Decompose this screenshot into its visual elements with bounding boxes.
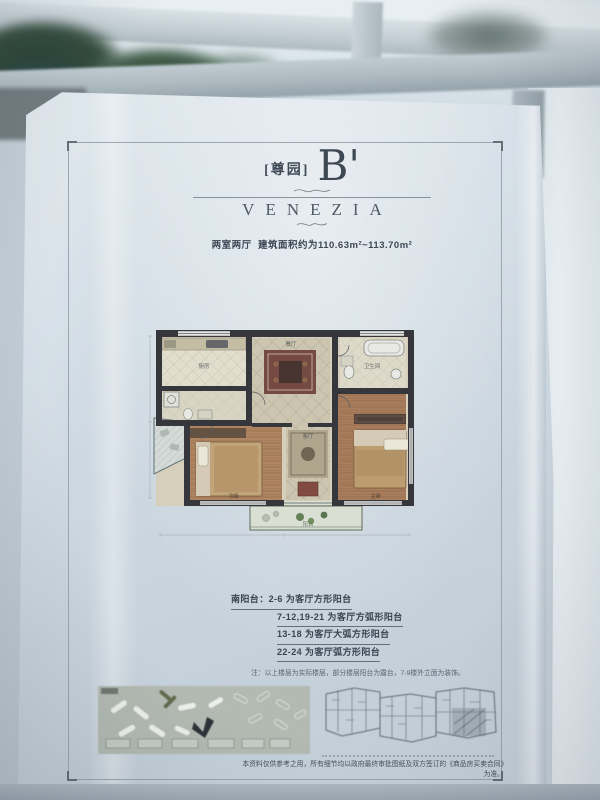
label-kitchen: 厨房 xyxy=(198,362,210,370)
legend-line: 7-12,19-21 为客厅方弧形阳台 xyxy=(277,610,403,628)
flourish-ornament xyxy=(295,221,329,228)
floor-key-plan xyxy=(318,680,502,752)
label-second-bedroom: 次卧 xyxy=(228,492,240,500)
rooms-count: 两室两厅 xyxy=(212,240,252,251)
photo-of-floorplan-poster: [尊园] B' VENEZIA 两室两厅 建筑面积约为110.63m²~113.… xyxy=(0,0,600,800)
project-tag: [尊园] xyxy=(264,159,309,186)
balcony-legend: 南阳台：2-6 为客厅方形阳台 7-12,19-21 为客厅方弧形阳台 13-1… xyxy=(231,592,481,682)
floor-plan-poster-sheet: [尊园] B' VENEZIA 两室两厅 建筑面积约为110.63m²~113.… xyxy=(18,88,560,800)
disclaimer-text: 本资料仅供参考之用，所有细节均以政府最终审批图纸及双方签订的《商品房买卖合同》为… xyxy=(242,758,504,778)
label-living-room: 客厅 xyxy=(302,432,314,440)
label-dining: 餐厅 xyxy=(285,340,297,348)
frame-corner-icon xyxy=(67,771,77,781)
title-block: [尊园] B' VENEZIA 两室两厅 建筑面积约为110.63m²~113.… xyxy=(68,146,528,251)
label-master-bedroom: 主卧 xyxy=(370,492,382,500)
unit-subtitle: 两室两厅 建筑面积约为110.63m²~113.70m² xyxy=(96,237,528,251)
legend-line: 南阳台：2-6 为客厅方形阳台 xyxy=(231,592,352,610)
brand-rule xyxy=(193,197,431,198)
tiny-caption-row xyxy=(322,752,494,757)
label-balcony: 阳台 xyxy=(302,520,314,528)
floor-plan-drawing: 厨房 餐厅 卫生间 主卧 次卧 客厅 阳台 xyxy=(148,326,422,538)
site-plan-label-chip xyxy=(101,688,118,694)
label-bathroom: 卫生间 xyxy=(364,362,381,370)
unit-type-label: B' xyxy=(317,146,359,186)
brand-name: VENEZIA xyxy=(96,200,528,220)
table-edge xyxy=(0,784,600,800)
legend-line: 13-18 为客厅大弧方形阳台 xyxy=(277,627,390,645)
legend-line: 22-24 为客厅弧方形阳台 xyxy=(277,645,380,663)
site-plan-thumbnail xyxy=(98,686,310,754)
built-area: 建筑面积约为110.63m²~113.70m² xyxy=(258,240,412,251)
